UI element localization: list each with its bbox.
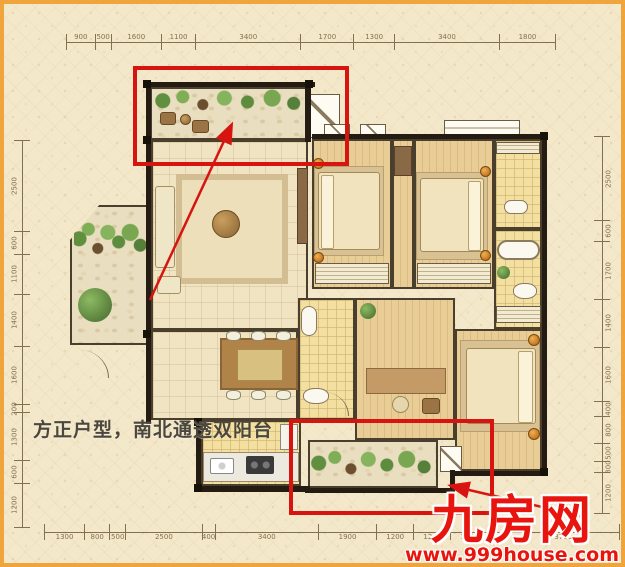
wall-segment	[542, 134, 547, 476]
washbasin	[301, 306, 317, 336]
shelf	[496, 142, 540, 154]
dimension-segment: 2500	[594, 136, 610, 220]
wall-segment	[146, 332, 151, 424]
sink	[210, 458, 234, 474]
corner-cap	[540, 132, 548, 140]
dimension-tick	[14, 527, 30, 528]
dimension-segment: 1100	[161, 34, 196, 50]
nightstand	[528, 334, 540, 346]
dimension-segment: 500	[95, 34, 111, 50]
stove	[246, 456, 274, 474]
dimension-segment: 1600	[111, 34, 161, 50]
dimension-segment: 1400	[14, 294, 30, 345]
nightstand	[313, 252, 324, 263]
dimension-row-top: 9005001600110034001700130034001800	[66, 34, 556, 50]
dimension-segment: 600	[14, 231, 30, 254]
bed	[420, 178, 484, 252]
pillow	[468, 181, 481, 251]
toilet	[513, 283, 537, 299]
plant	[360, 303, 376, 319]
dimension-label: 400	[606, 402, 613, 415]
tv-cabinet	[297, 168, 308, 244]
nightstand	[480, 250, 491, 261]
dimension-label: 1400	[606, 315, 613, 333]
dimension-segment: 1200	[14, 483, 30, 527]
dimension-label: 1300	[365, 34, 383, 41]
dimension-segment: 400	[594, 401, 610, 415]
watermark-brand: 九房网	[405, 496, 619, 546]
dimension-segment: 3400	[394, 34, 499, 50]
shelf-niche	[394, 146, 412, 176]
armchair	[157, 276, 181, 294]
dimension-label: 1700	[318, 34, 336, 41]
dimension-label: 1300	[12, 428, 19, 446]
dimension-segment: 1300	[14, 412, 30, 460]
dimension-segment: 1400	[594, 299, 610, 347]
dimension-label: 800	[606, 423, 613, 436]
wardrobe	[315, 263, 389, 284]
dining-chair	[276, 331, 291, 341]
dimension-segment: 3400	[195, 34, 300, 50]
pillow	[518, 351, 533, 423]
north-balcony-highlight-box	[133, 66, 349, 166]
wardrobe	[496, 306, 541, 323]
dimension-segment: 1700	[300, 34, 353, 50]
dimension-label: 500	[606, 446, 613, 459]
dimension-label: 1600	[12, 366, 19, 384]
dimension-segment: 800	[594, 416, 610, 444]
dining-chair	[251, 390, 266, 400]
dimension-label: 1400	[12, 311, 19, 329]
dimension-segment: 2500	[14, 140, 30, 231]
dimension-segment: 400	[202, 524, 215, 540]
dimension-tick	[619, 524, 620, 540]
dimension-segment: 900	[66, 34, 95, 50]
dimension-label: 2500	[606, 170, 613, 188]
dimension-segment: 1900	[318, 524, 376, 540]
dimension-label: 1200	[386, 534, 404, 541]
dimension-segment: 2500	[125, 524, 201, 540]
wall-segment	[146, 138, 151, 336]
corner-cap	[540, 468, 548, 476]
dimension-label: 600	[12, 465, 19, 478]
balcony-plants	[74, 210, 146, 274]
plant	[78, 288, 112, 322]
dimension-segment: 1800	[499, 34, 555, 50]
dimension-segment: 800	[84, 524, 109, 540]
sofa	[155, 186, 175, 268]
dimension-segment: 1600	[594, 347, 610, 401]
dimension-label: 2500	[155, 534, 173, 541]
dimension-segment: 200	[14, 404, 30, 412]
floorplan-image: 9005001600110034001700130034001800 13008…	[0, 0, 625, 567]
dining-chair	[226, 390, 241, 400]
dimension-label: 1600	[606, 366, 613, 384]
table-runner	[237, 349, 283, 382]
dimension-segment: 1100	[14, 254, 30, 295]
nightstand	[480, 166, 491, 177]
dimension-label: 1100	[170, 34, 188, 41]
dimension-segment: 1700	[594, 241, 610, 299]
dimension-label: 3400	[258, 534, 276, 541]
stool	[422, 398, 440, 414]
dimension-label: 1800	[519, 34, 537, 41]
coffee-table	[212, 210, 240, 238]
entry-door-arc	[80, 350, 109, 378]
watermark-url: www.999house.com	[405, 546, 619, 565]
dimension-label: 500	[111, 534, 124, 541]
wardrobe	[417, 263, 491, 284]
dimension-segment: 3400	[215, 524, 318, 540]
dimension-segment: 600	[14, 460, 30, 483]
dimension-label: 2500	[12, 177, 19, 195]
dimension-column-left: 250060011001400160020013006001200	[14, 140, 30, 528]
dimension-label: 900	[74, 34, 87, 41]
washbasin	[504, 200, 528, 214]
dimension-label: 1700	[606, 262, 613, 280]
dimension-label: 400	[202, 534, 215, 541]
dimension-segment: 300	[594, 461, 610, 472]
pillow	[321, 175, 334, 249]
desk-chair	[392, 396, 409, 413]
dimension-label: 3400	[239, 34, 257, 41]
dimension-label: 600	[606, 225, 613, 238]
dimension-label: 800	[90, 534, 103, 541]
dining-table	[220, 338, 298, 390]
corner-cap	[143, 330, 151, 338]
corner-cap	[194, 484, 202, 492]
dimension-label: 1300	[56, 534, 74, 541]
dimension-segment: 600	[594, 220, 610, 241]
dimension-label: 3400	[438, 34, 456, 41]
dimension-label: 1100	[12, 265, 19, 283]
dimension-segment: 500	[594, 443, 610, 461]
slogan-text: 方正户型，南北通透双阳台	[33, 415, 273, 442]
dimension-label: 600	[12, 236, 19, 249]
dimension-label: 1600	[127, 34, 145, 41]
bathtub	[497, 240, 540, 260]
dining-chair	[251, 331, 266, 341]
dimension-label: 1200	[12, 496, 19, 514]
dimension-segment: 1300	[353, 34, 394, 50]
dimension-segment: 1600	[14, 346, 30, 405]
dimension-segment: 1300	[44, 524, 84, 540]
dimension-segment: 500	[109, 524, 125, 540]
plant	[497, 266, 510, 279]
nightstand	[528, 428, 540, 440]
dimension-tick	[555, 34, 556, 50]
study-desk	[366, 368, 446, 394]
bed	[318, 172, 380, 250]
dining-chair	[276, 390, 291, 400]
dimension-column-right: 25006001700140016004008005003001200	[594, 136, 610, 514]
dimension-label: 1900	[339, 534, 357, 541]
bed	[466, 348, 536, 424]
watermark: 九房网 www.999house.com	[405, 496, 619, 565]
dining-chair	[226, 331, 241, 341]
dimension-label: 500	[96, 34, 109, 41]
